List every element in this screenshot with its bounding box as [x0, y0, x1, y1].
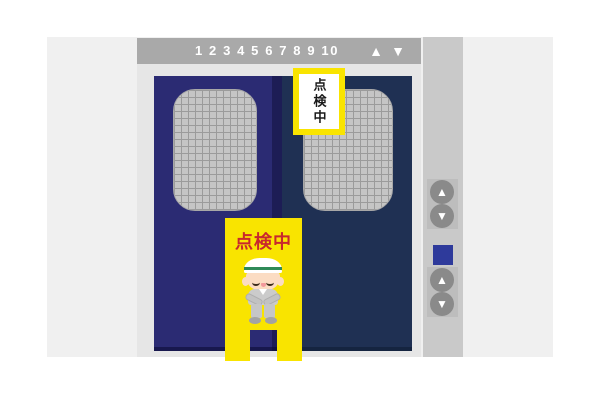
- call-up-button-bottom[interactable]: ▲: [430, 268, 454, 292]
- worker-ear-left: [242, 277, 249, 286]
- inspection-door-sign: 点検中: [293, 68, 345, 135]
- worker-ear-right: [277, 277, 284, 286]
- down-arrow-icon: ▼: [436, 210, 448, 222]
- call-panel-bottom: ▲ ▼: [427, 267, 458, 317]
- down-arrow-icon: ▼: [436, 298, 448, 310]
- inspection-stand-text: 点検中: [225, 228, 302, 254]
- stand-leg-right: [277, 330, 302, 361]
- worker-shoe-right: [265, 317, 277, 324]
- maintenance-worker: [241, 258, 285, 324]
- left-door-window: [173, 89, 257, 211]
- indicator-up-icon: ▲: [369, 41, 383, 61]
- worker-leg-right: [264, 304, 275, 318]
- elevator-inspection-scene: 1 2 3 4 5 6 7 8 9 10 ▲ ▼ 点検中 ▲ ▼ ▲ ▼: [0, 0, 600, 400]
- call-down-button-bottom[interactable]: ▼: [430, 292, 454, 316]
- worker-collar: [259, 289, 267, 295]
- position-indicator-light: [433, 245, 453, 265]
- inspection-door-sign-text: 点検中: [313, 78, 326, 126]
- call-down-button-top[interactable]: ▼: [430, 204, 454, 228]
- worker-closed-eye-right: [266, 279, 274, 286]
- up-arrow-icon: ▲: [436, 186, 448, 198]
- floor-numbers: 1 2 3 4 5 6 7 8 9 10: [195, 43, 339, 58]
- worker-leg-left: [251, 304, 262, 318]
- inspection-floor-stand: 点検中: [225, 218, 302, 361]
- up-arrow-icon: ▲: [436, 274, 448, 286]
- call-button-strip: ▲ ▼ ▲ ▼: [423, 37, 463, 357]
- worker-shoe-left: [249, 317, 261, 324]
- worker-closed-eye-left: [252, 279, 260, 286]
- call-up-button-top[interactable]: ▲: [430, 180, 454, 204]
- call-panel-top: ▲ ▼: [427, 179, 458, 229]
- worker-helmet-brim: [244, 270, 282, 273]
- floor-indicator-bar: 1 2 3 4 5 6 7 8 9 10 ▲ ▼: [137, 38, 421, 64]
- stand-leg-left: [225, 330, 250, 361]
- indicator-down-icon: ▼: [391, 41, 405, 61]
